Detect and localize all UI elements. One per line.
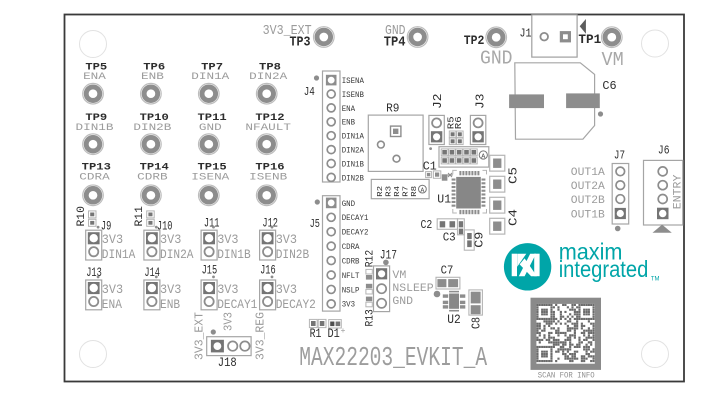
svg-text:OUT1A: OUT1A bbox=[571, 167, 605, 179]
svg-text:C3: C3 bbox=[443, 230, 456, 244]
svg-text:ISENB: ISENB bbox=[249, 171, 287, 183]
svg-text:R9: R9 bbox=[386, 101, 399, 115]
svg-text:DIN2A: DIN2A bbox=[249, 71, 288, 83]
svg-text:DIN2A: DIN2A bbox=[160, 248, 194, 262]
svg-text:3V3: 3V3 bbox=[276, 233, 297, 247]
svg-text:ENA: ENA bbox=[342, 105, 355, 114]
svg-text:3V3: 3V3 bbox=[217, 233, 238, 247]
svg-text:ENTRY: ENTRY bbox=[672, 174, 684, 209]
svg-text:3V3: 3V3 bbox=[102, 283, 123, 297]
svg-text:DIN2B: DIN2B bbox=[276, 248, 310, 262]
svg-text:R11: R11 bbox=[134, 206, 146, 226]
svg-text:CDRB: CDRB bbox=[342, 257, 360, 266]
svg-text:3V3_EXT: 3V3_EXT bbox=[192, 312, 206, 360]
svg-text:CDRA: CDRA bbox=[79, 171, 110, 183]
svg-text:R3: R3 bbox=[385, 186, 393, 197]
svg-text:C6: C6 bbox=[602, 79, 616, 93]
svg-text:U2: U2 bbox=[447, 313, 461, 327]
svg-text:NSLP: NSLP bbox=[342, 286, 360, 295]
svg-text:J18: J18 bbox=[218, 356, 237, 370]
svg-text:R12: R12 bbox=[365, 250, 377, 267]
svg-text:OUT1B: OUT1B bbox=[571, 209, 605, 221]
svg-text:R1: R1 bbox=[310, 327, 322, 341]
svg-text:DIN1A: DIN1A bbox=[102, 248, 136, 262]
svg-text:DIN2B: DIN2B bbox=[133, 122, 171, 134]
svg-text:J4: J4 bbox=[304, 85, 315, 99]
svg-text:J11: J11 bbox=[204, 216, 220, 230]
svg-text:D1: D1 bbox=[328, 327, 340, 341]
svg-text:TP2: TP2 bbox=[464, 33, 485, 48]
svg-text:GND: GND bbox=[199, 122, 222, 134]
svg-text:J15: J15 bbox=[202, 264, 218, 278]
svg-text:ENB: ENB bbox=[141, 71, 164, 83]
svg-text:3V3: 3V3 bbox=[221, 312, 235, 331]
svg-text:3V3: 3V3 bbox=[276, 283, 297, 297]
svg-text:C2: C2 bbox=[421, 218, 433, 232]
svg-text:+: + bbox=[341, 327, 346, 336]
svg-text:VM: VM bbox=[392, 270, 406, 282]
svg-text:J7: J7 bbox=[614, 149, 625, 163]
svg-text:R2: R2 bbox=[377, 186, 385, 197]
svg-text:3V3: 3V3 bbox=[160, 283, 181, 297]
svg-text:DECAY2: DECAY2 bbox=[342, 229, 369, 238]
svg-text:NFLT: NFLT bbox=[342, 272, 360, 281]
svg-text:DIN2A: DIN2A bbox=[342, 147, 364, 156]
svg-text:J17: J17 bbox=[380, 249, 397, 263]
svg-text:DIN1B: DIN1B bbox=[342, 160, 364, 169]
svg-text:3V3: 3V3 bbox=[160, 233, 181, 247]
svg-text:J3: J3 bbox=[474, 94, 488, 110]
svg-text:C9: C9 bbox=[472, 232, 486, 248]
svg-text:DIN1B: DIN1B bbox=[217, 248, 251, 262]
svg-text:R4: R4 bbox=[394, 186, 402, 197]
svg-text:TP3: TP3 bbox=[290, 35, 311, 51]
svg-text:A: A bbox=[421, 187, 425, 194]
svg-text:J6: J6 bbox=[658, 144, 670, 158]
svg-text:3V3_REG: 3V3_REG bbox=[253, 312, 267, 360]
svg-text:ENB: ENB bbox=[342, 119, 355, 128]
svg-text:C4: C4 bbox=[507, 209, 521, 226]
svg-text:OUT2A: OUT2A bbox=[571, 181, 605, 193]
svg-text:R13: R13 bbox=[365, 309, 377, 326]
svg-text:3V3: 3V3 bbox=[342, 301, 355, 310]
svg-text:3V3: 3V3 bbox=[102, 233, 123, 247]
svg-text:SCAN FOR INFO: SCAN FOR INFO bbox=[538, 372, 595, 381]
svg-text:VM: VM bbox=[602, 49, 624, 71]
svg-text:DIN2B: DIN2B bbox=[342, 174, 364, 183]
svg-text:DECAY2: DECAY2 bbox=[276, 298, 316, 312]
svg-text:DECAY1: DECAY1 bbox=[342, 214, 369, 223]
svg-text:J13: J13 bbox=[86, 266, 102, 280]
svg-text:TP4: TP4 bbox=[384, 35, 406, 51]
svg-text:GND: GND bbox=[480, 47, 513, 69]
svg-text:integrated: integrated bbox=[559, 256, 649, 282]
svg-text:J12: J12 bbox=[262, 216, 278, 230]
svg-text:CDRB: CDRB bbox=[137, 171, 167, 183]
svg-text:R10: R10 bbox=[76, 206, 88, 226]
svg-text:C5: C5 bbox=[507, 167, 521, 184]
svg-text:J5: J5 bbox=[310, 217, 320, 231]
svg-text:ENA: ENA bbox=[83, 71, 107, 83]
svg-text:TM: TM bbox=[651, 276, 660, 282]
svg-text:ISENB: ISENB bbox=[342, 91, 364, 100]
svg-text:J9: J9 bbox=[101, 219, 111, 233]
svg-text:U1: U1 bbox=[437, 192, 451, 206]
svg-text:C7: C7 bbox=[441, 264, 454, 278]
svg-text:J10: J10 bbox=[157, 219, 173, 233]
svg-text:3V3: 3V3 bbox=[217, 283, 238, 297]
svg-text:TP1: TP1 bbox=[578, 32, 601, 47]
svg-text:NFAULT: NFAULT bbox=[245, 122, 291, 134]
svg-text:GND: GND bbox=[342, 200, 355, 209]
svg-text:GND: GND bbox=[392, 296, 413, 308]
svg-text:J1: J1 bbox=[520, 27, 532, 41]
svg-text:DIN1A: DIN1A bbox=[342, 133, 364, 142]
svg-text:J14: J14 bbox=[144, 266, 160, 280]
svg-text:ISENA: ISENA bbox=[342, 77, 364, 86]
svg-text:R6: R6 bbox=[454, 116, 464, 129]
svg-text:C8: C8 bbox=[470, 317, 484, 329]
svg-text:NSLEEP: NSLEEP bbox=[392, 283, 433, 295]
svg-text:ISENA: ISENA bbox=[191, 171, 230, 183]
svg-text:J2: J2 bbox=[431, 94, 445, 110]
svg-text:DECAY1: DECAY1 bbox=[217, 298, 257, 312]
svg-text:J16: J16 bbox=[260, 264, 276, 278]
svg-text:DIN1A: DIN1A bbox=[191, 71, 230, 83]
svg-text:CDRA: CDRA bbox=[342, 243, 360, 252]
svg-text:R7: R7 bbox=[402, 186, 410, 197]
svg-text:ENA: ENA bbox=[102, 298, 123, 312]
svg-text:DIN1B: DIN1B bbox=[76, 122, 114, 134]
svg-text:ENB: ENB bbox=[160, 298, 181, 312]
svg-text:R8: R8 bbox=[411, 186, 419, 197]
svg-text:OUT2B: OUT2B bbox=[571, 195, 605, 207]
svg-text:MAX22203_EVKIT_A: MAX22203_EVKIT_A bbox=[299, 343, 488, 374]
